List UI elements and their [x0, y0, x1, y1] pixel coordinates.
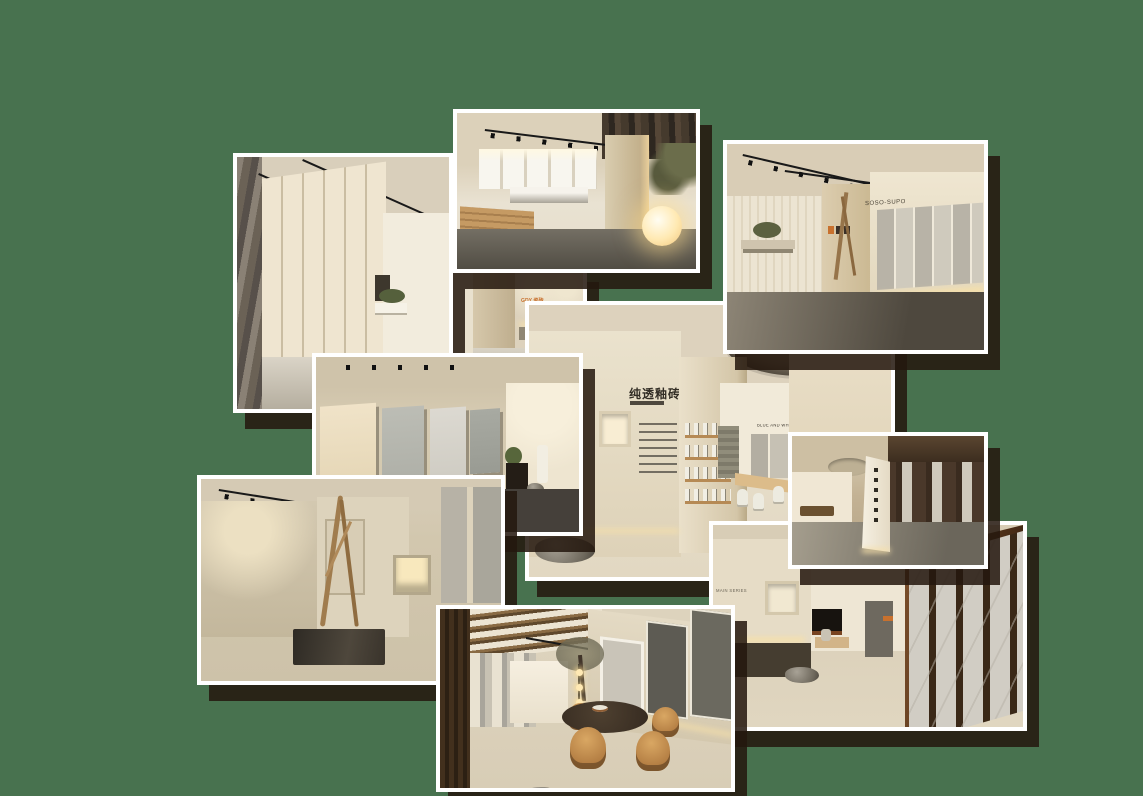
sample-panel-light [430, 407, 466, 482]
marble-column [237, 157, 262, 409]
floor-rock [785, 667, 819, 683]
gray-partition [865, 601, 893, 657]
wood-framed-tile-wall [888, 462, 984, 524]
lit-niche [599, 411, 631, 447]
wood-slat-wall [440, 609, 470, 788]
scene [440, 609, 731, 788]
floor [727, 292, 984, 350]
corridor-tile-panels [751, 434, 789, 478]
chair [737, 489, 748, 505]
palm-plant [649, 143, 696, 195]
bonsai-plant [379, 289, 405, 303]
end-wall [383, 213, 449, 363]
wood-chair [636, 731, 670, 771]
vertical-calligraphy [874, 468, 878, 522]
photo-brand-wall-showroom: SOSO-SUPO [723, 140, 988, 354]
lit-shelf-niche [393, 555, 431, 595]
reception-counter [510, 187, 588, 203]
orange-logo-mark [828, 226, 834, 234]
stone-slab-table [741, 240, 795, 249]
tall-tile-panels [441, 487, 501, 603]
floor-rock [535, 537, 595, 563]
glowing-sphere-lamp [642, 206, 682, 246]
fruit-bowl [592, 705, 608, 712]
scene [792, 436, 984, 565]
bonsai-plant [753, 222, 781, 238]
series-label-text: MAIN SERIES [716, 589, 747, 593]
bright-hall-end [510, 661, 568, 723]
display-table [375, 303, 407, 313]
chair [773, 486, 784, 502]
bright-seating-area [792, 472, 852, 524]
dark-wood-ceiling [888, 436, 984, 462]
lamp-orb [576, 669, 583, 676]
partition-underlight [862, 548, 890, 553]
white-vase [537, 445, 548, 483]
tile-panel-row [877, 203, 983, 290]
photo-sphere-lamp-showroom [453, 109, 700, 273]
scene [457, 113, 696, 269]
chair [753, 493, 764, 509]
wood-chair [570, 727, 606, 769]
photo-collage: GDY 瓷砖 纯透釉砖 [0, 0, 1143, 796]
bench-seat [800, 506, 834, 516]
spotlit-wall [201, 501, 317, 637]
orange-logo-mark [883, 616, 893, 621]
chair [821, 629, 831, 641]
wall-title-text: 纯透釉砖 [629, 385, 681, 402]
reflecting-pool [293, 629, 385, 665]
title-underline [630, 401, 664, 405]
lamp-orb [576, 684, 583, 691]
description-paragraph [639, 423, 677, 473]
white-display-panels [479, 149, 597, 189]
wall-niche [765, 581, 799, 615]
photo-dining-table-showroom [436, 605, 735, 792]
sample-shelf [685, 479, 731, 504]
textured-panel-wall [718, 426, 739, 478]
dark-tile-panel [690, 608, 735, 722]
sample-panel-dark [470, 408, 500, 474]
photo-calligraphy-partition-hall [788, 432, 988, 569]
dark-tile-panel [646, 620, 688, 719]
floor-rock [526, 787, 558, 792]
scene: SOSO-SUPO [727, 144, 984, 350]
